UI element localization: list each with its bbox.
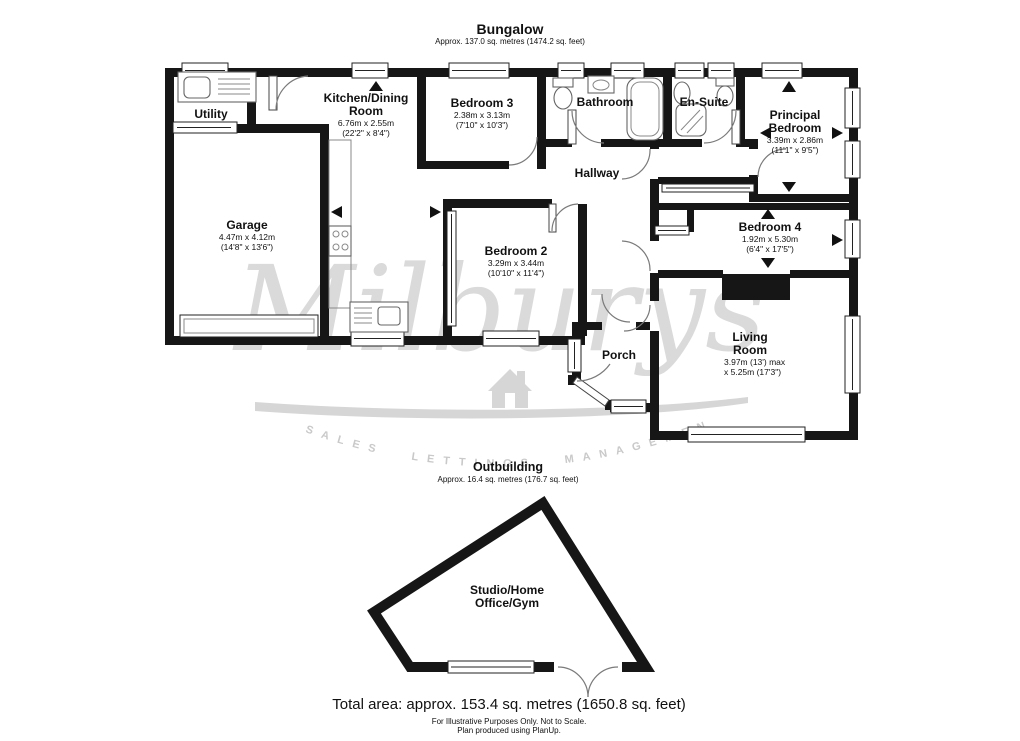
- door-arc: [577, 364, 610, 381]
- room-name: Hallway: [575, 167, 620, 180]
- room-dims-imperial: (11'1" x 9'5"): [757, 145, 833, 155]
- toilet-bowl: [554, 87, 572, 109]
- kitchen-counter: [329, 140, 351, 308]
- wall: [650, 331, 659, 432]
- bath: [627, 78, 663, 140]
- outbuilding-subtitle: Approx. 16.4 sq. metres (176.7 sq. feet): [438, 475, 579, 485]
- room-name: Bedroom 3: [451, 97, 514, 110]
- room-name: Porch: [602, 349, 636, 362]
- arrow-left: [331, 206, 342, 218]
- disclaimer-line2: Plan produced using PlanUp.: [457, 726, 561, 735]
- arrow-right: [430, 206, 441, 218]
- door-arc: [704, 111, 736, 143]
- outbuilding-title: Outbuilding: [438, 460, 579, 475]
- chimney-breast: [722, 274, 790, 300]
- room-dims-metric: 3.97m (13') max: [724, 357, 776, 367]
- wall: [443, 199, 552, 208]
- arrow-up: [782, 81, 796, 92]
- room-dims-imperial: (14'8" x 13'6"): [219, 242, 275, 252]
- room-name: Bathroom: [577, 96, 634, 109]
- plan-title: Bungalow: [435, 22, 585, 37]
- room-name: Bedroom 4: [739, 221, 802, 234]
- wall: [658, 177, 758, 184]
- arrow-right: [832, 234, 843, 246]
- room-label-ensuite: En-Suite: [680, 96, 729, 109]
- room-label-hallway: Hallway: [575, 167, 620, 180]
- room-dims-metric: 4.47m x 4.12m: [219, 232, 275, 242]
- arrow-right: [832, 127, 843, 139]
- room-dims-imperial: (10'10" x 11'4"): [485, 268, 548, 278]
- room-label-bedroom4: Bedroom 4 1.92m x 5.30m (6'4" x 17'5"): [739, 221, 802, 254]
- room-name: Bedroom 2: [485, 245, 548, 258]
- room-label-principal: Principal Bedroom 3.39m x 2.86m (11'1" x…: [757, 109, 833, 155]
- room-label-porch: Porch: [602, 349, 636, 362]
- room-name: Kitchen/Dining Room: [319, 92, 413, 118]
- room-dims-metric: 3.39m x 2.86m: [757, 135, 833, 145]
- hob: [329, 226, 351, 256]
- door-arc: [602, 294, 630, 322]
- wall: [578, 204, 587, 336]
- room-dims-metric: 3.29m x 3.44m: [485, 258, 548, 268]
- room-dims-imperial: (6'4" x 17'5"): [739, 244, 802, 254]
- wall: [320, 131, 329, 336]
- room-label-studio: Studio/Home Office/Gym: [455, 584, 559, 610]
- utility-sink-bowl: [184, 77, 210, 98]
- outbuilding-title-block: Outbuilding Approx. 16.4 sq. metres (176…: [438, 460, 579, 485]
- door-arc: [276, 76, 308, 110]
- floorplan-page: Milburys SALES LETTINGS MANAGEMENT: [0, 0, 1020, 741]
- total-area-text: Total area: approx. 153.4 sq. metres (16…: [332, 696, 686, 713]
- plan-subtitle: Approx. 137.0 sq. metres (1474.2 sq. fee…: [435, 37, 585, 47]
- arrow-up: [369, 81, 383, 91]
- room-name: En-Suite: [680, 96, 729, 109]
- arrow-up: [761, 209, 775, 219]
- room-dims-imperial: (22'2" x 8'4"): [319, 128, 413, 138]
- plan-title-block: Bungalow Approx. 137.0 sq. metres (1474.…: [435, 22, 585, 47]
- room-label-kitchen: Kitchen/Dining Room 6.76m x 2.55m (22'2"…: [319, 92, 413, 138]
- door-arc: [622, 149, 650, 179]
- wall: [417, 76, 426, 169]
- arrow-down: [761, 258, 775, 268]
- room-label-utility: Utility: [194, 108, 227, 121]
- garage-door: [180, 315, 318, 337]
- room-label-bedroom2: Bedroom 2 3.29m x 3.44m (10'10" x 11'4"): [485, 245, 548, 278]
- room-dims-metric: 6.76m x 2.55m: [319, 118, 413, 128]
- wall: [537, 76, 546, 169]
- wall: [758, 194, 850, 202]
- door-arc: [509, 137, 537, 165]
- wall: [663, 76, 672, 147]
- room-name: Living Room: [724, 331, 776, 357]
- wall: [672, 139, 702, 147]
- room-name: Studio/Home Office/Gym: [455, 584, 559, 610]
- room-dims-imperial: x 5.25m (17'3"): [724, 367, 776, 377]
- wall: [658, 270, 723, 278]
- room-name: Utility: [194, 108, 227, 121]
- room-dims-metric: 1.92m x 5.30m: [739, 234, 802, 244]
- wall: [417, 161, 509, 169]
- wall: [165, 68, 174, 345]
- wall: [790, 270, 850, 278]
- door-arc: [622, 241, 650, 271]
- room-name: Garage: [219, 219, 275, 232]
- room-label-living: Living Room 3.97m (13') max x 5.25m (17'…: [724, 331, 776, 377]
- toilet: [716, 78, 734, 86]
- door-arc: [572, 111, 604, 143]
- room-label-bedroom3: Bedroom 3 2.38m x 3.13m (7'10" x 10'3"): [451, 97, 514, 130]
- room-label-garage: Garage 4.47m x 4.12m (14'8" x 13'6"): [219, 219, 275, 252]
- kitchen-sink-bowl: [378, 307, 400, 325]
- room-dims-imperial: (7'10" x 10'3"): [451, 120, 514, 130]
- room-dims-metric: 2.38m x 3.13m: [451, 110, 514, 120]
- wall: [650, 273, 659, 301]
- room-label-bathroom: Bathroom: [577, 96, 634, 109]
- arrow-down: [782, 182, 796, 192]
- toilet: [553, 78, 573, 87]
- wall: [658, 203, 850, 210]
- disclaimer-line1: For Illustrative Purposes Only. Not to S…: [432, 717, 587, 726]
- room-name: Principal Bedroom: [757, 109, 833, 135]
